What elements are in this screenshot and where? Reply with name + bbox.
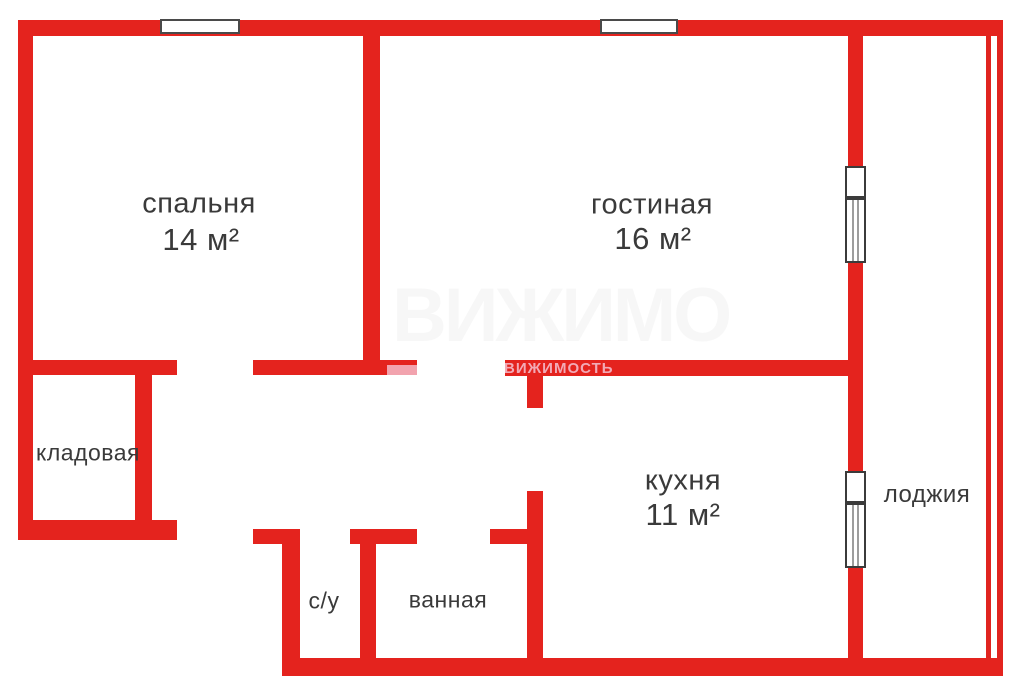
watermark-ghost: ВИЖИМОСТЬ: [392, 272, 732, 372]
loggia-label: лоджия: [884, 481, 971, 509]
wall-wc-bathroom-divider: [360, 544, 376, 660]
wall-exterior-bottom: [282, 658, 1003, 676]
window-living-room: [600, 19, 678, 34]
balcony-unit-living-room: [845, 166, 866, 263]
floor-plan: ВИЖИМОСТЬ ВИЖИМОСТЬ спальня 14 м² гостин…: [0, 0, 1024, 696]
balcony-door-kitchen-icon: [845, 471, 866, 503]
watermark-pink-patch: [387, 365, 417, 375]
wall-bathroom-kitchen-divider: [527, 491, 543, 660]
window-bedroom: [160, 19, 240, 34]
loggia-glazing-line-inner: [986, 36, 991, 660]
kitchen-label: кухня: [645, 465, 721, 498]
wall-kitchen-entry-stub: [527, 376, 543, 408]
storage-label: кладовая: [36, 440, 140, 467]
wall-wc-bathroom-stub: [350, 529, 417, 544]
kitchen-area: 11 м²: [646, 497, 721, 533]
bedroom-area: 14 м²: [162, 222, 239, 258]
wall-storage-bottom: [18, 520, 177, 540]
loggia-glazing-line-outer: [997, 36, 1003, 660]
wall-exterior-left: [18, 20, 33, 540]
watermark-wall-text: ВИЖИМОСТЬ: [504, 361, 614, 376]
wall-storage-top: [18, 360, 177, 375]
balcony-unit-kitchen: [845, 471, 866, 568]
wc-label: с/у: [309, 588, 340, 615]
wall-wc-left: [282, 544, 300, 660]
bedroom-label: спальня: [142, 188, 256, 221]
wall-bathroom-door-stub-right: [490, 529, 527, 544]
living-room-area: 16 м²: [614, 221, 691, 257]
wall-wc-door-stub-left: [253, 529, 300, 544]
wall-bedroom-living-divider: [363, 36, 380, 375]
balcony-window-kitchen-icon: [845, 503, 866, 568]
bathroom-label: ванная: [409, 587, 487, 614]
balcony-door-living-room-icon: [845, 166, 866, 198]
living-room-label: гостиная: [591, 189, 713, 222]
balcony-window-living-room-icon: [845, 198, 866, 263]
